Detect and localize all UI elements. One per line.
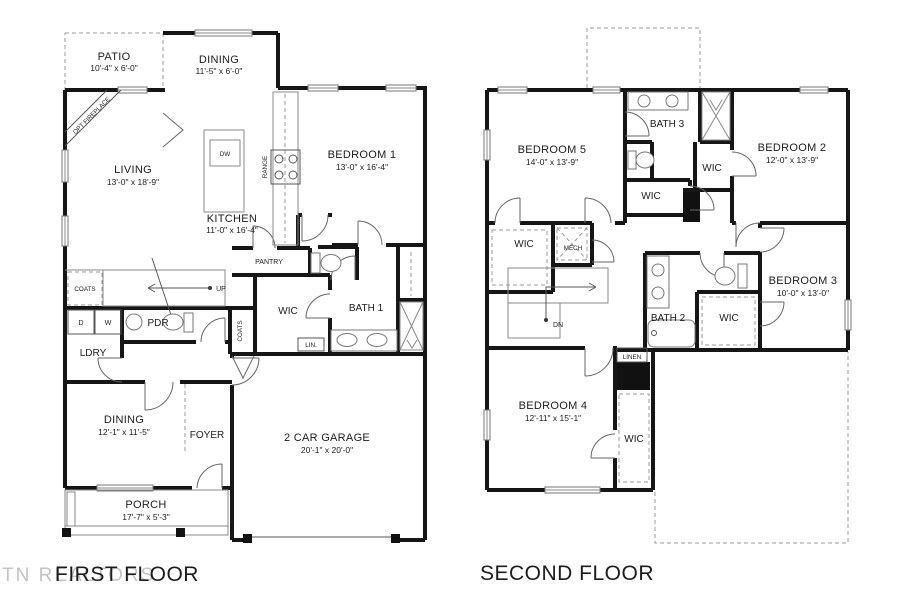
powder-door [201,318,225,342]
bath3-door [625,112,649,136]
up-label: UP [216,286,226,293]
bedroom1-dims: 13'-0" x 16'-4" [336,162,388,172]
porch-post [176,528,185,537]
laundry-units [68,310,121,334]
first-floor-labels: PATIO 10'-4" x 6'-0" DINING 11'-5" x 6'-… [72,51,396,522]
second-floor-labels: BEDROOM 5 14'-0" x 13'-9" BATH 3 WIC WIC… [514,119,837,445]
bath2-toilet-tank [738,264,747,288]
wic-label: WIC [278,306,297,317]
bath3-fixtures [628,92,730,169]
bedroom5-label: BEDROOM 5 [518,144,587,156]
pdr-label: PDR [147,318,168,329]
second-floor-title: SECOND FLOOR [480,562,654,585]
bedroom3-dims: 10'-0" x 13'-0" [777,288,829,298]
living-dims: 13'-0" x 18'-9" [107,177,159,187]
wic-left-door [495,198,520,223]
bedroom3-door [760,228,784,252]
lin-label: LIN. [305,342,317,349]
patio-dims: 10'-4" x 6'-0" [90,63,138,73]
coats-a-label: COATS [74,286,95,293]
bedroom5-dims: 14'-0" x 13'-9" [526,157,578,167]
bedroom3-label: BEDROOM 3 [769,275,838,287]
bath2-tub [648,320,695,347]
bedroom2-dims: 12'-0" x 13'-9" [766,155,818,165]
wic-bed2-label: WIC [702,163,721,174]
wic-door [306,294,330,318]
garage-label: 2 CAR GARAGE [284,432,370,444]
roof-outline-top [587,28,700,88]
ldry-label: LDRY [80,348,107,359]
dn-label: DN [553,322,563,329]
dining-door [145,382,173,410]
wic-left-label: WIC [514,239,533,250]
pantry-label: PANTRY [255,259,283,266]
mech-label: MECH [564,245,583,252]
wic-bed3-door [760,302,784,326]
garage-door [243,534,400,543]
kitchen-island [204,130,244,212]
bath3-toilet [636,152,654,168]
living-label: LIVING [114,164,152,176]
dishwasher-label: DW [220,151,231,158]
coats-b-label: COATS [237,320,244,341]
first-floor-walls [65,33,427,540]
bedroom2-door [736,223,760,247]
front-door [197,464,222,488]
first-floor-plan: PATIO 10'-4" x 6'-0" DINING 11'-5" x 6'-… [62,30,427,543]
kitchen-label: KITCHEN [207,213,257,225]
wic-bed4-door [591,434,615,458]
first-floor-title: FIRST FLOOR [55,563,199,586]
porch-dims: 17'-7" x 5'-3" [122,512,170,522]
dining-bottom-dims: 12'-1" x 11'-5" [98,427,150,437]
laundry-door [98,358,122,382]
bath3-vanity [628,92,688,110]
garage-dims: 20'-1" x 20'-0" [301,445,353,455]
dining-top-dims: 11'-5" x 6'-0" [196,66,243,76]
bath2-label: BATH 2 [651,313,686,324]
bath1-toilet [321,255,341,272]
porch-post [62,528,71,537]
patio-door [163,113,183,147]
bath3-shower [702,92,730,140]
kitchen-counter [271,92,300,245]
hall-door [302,215,328,241]
second-floor-plan: BEDROOM 5 14'-0" x 13'-9" BATH 3 WIC WIC… [484,28,851,543]
dryer-label: D [78,320,83,327]
garage-entry-door [232,358,259,385]
bedroom1-label: BEDROOM 1 [328,149,397,161]
bedroom1-door [358,221,382,245]
patio-label: PATIO [98,51,131,63]
bedroom2-label: BEDROOM 2 [758,142,827,154]
dining-bottom-label: DINING [104,414,144,426]
wic-bed3-label: WIC [719,313,738,324]
bedroom4-door [585,348,613,376]
kitchen-dims: 11'-0" x 16'-4" [206,225,258,235]
washer-label: W [105,320,112,327]
bath2-toilet [715,267,735,285]
bath1-fixtures [298,252,423,351]
bath3-toilet-tank [628,151,636,169]
wic-hall-label: WIC [641,191,660,202]
pdr-sink [126,314,142,330]
range-label: RANGE [262,156,269,178]
bedroom5-door [585,198,611,223]
bath1-toilet-tank [311,253,320,273]
porch-label: PORCH [125,499,166,511]
bath3-label: BATH 3 [650,119,685,130]
bath1-label: BATH 1 [349,303,384,314]
foyer-label: FOYER [190,430,224,441]
bedroom4-label: BEDROOM 4 [519,400,588,412]
wic-bed4-label: WIC [624,434,643,445]
mech-door [592,240,614,262]
mech-unit [557,228,587,260]
floor-plan-drawing: PATIO 10'-4" x 6'-0" DINING 11'-5" x 6'-… [0,0,900,600]
fireplace-label: OPT FIREPLACE [72,96,112,136]
linen-label: LINEN [623,354,642,361]
wic-bed2-door [732,152,756,176]
coats-bifold-door [232,356,254,378]
chase-void [617,362,650,390]
chase-void [683,192,700,222]
pdr-toilet-tank [184,313,193,332]
bedroom4-dims: 12'-11" x 15'-1" [525,413,581,423]
bath1-shower [400,302,423,350]
floor-plan-image: PATIO 10'-4" x 6'-0" DINING 11'-5" x 6'-… [0,0,900,600]
roof-outline-bottom [655,352,848,543]
dining-top-label: DINING [199,54,239,66]
